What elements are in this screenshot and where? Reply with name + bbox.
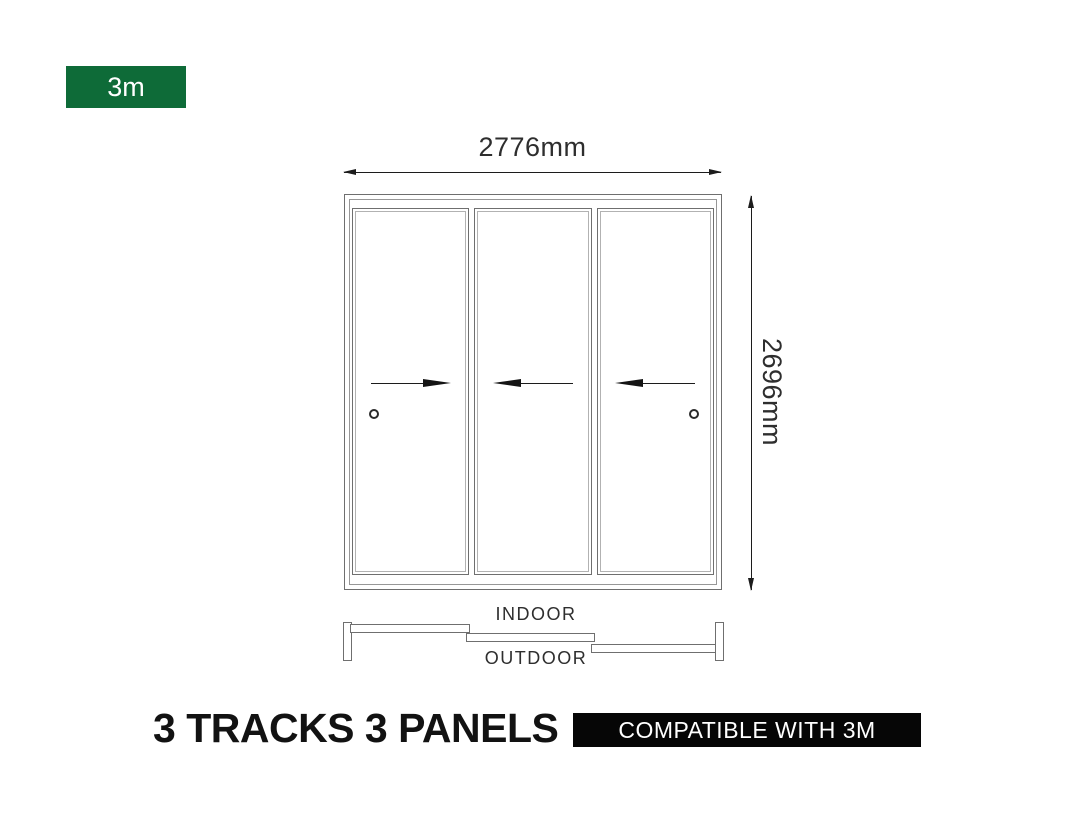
arrow-head [615,379,643,387]
indoor-label: INDOOR [466,604,606,625]
height-dimension-label: 2696mm [756,332,788,452]
arrow-head [423,379,451,387]
sliding-door-diagram: 3m 2776mm [0,0,1080,831]
arrow-shaft [371,383,425,384]
height-dimension: 2696mm [700,194,840,592]
product-title: 3 TRACKS 3 PANELS [153,705,558,751]
compatibility-badge-label: COMPATIBLE WITH 3M [618,717,875,744]
slide-direction-arrow-icon [371,379,451,388]
width-dimension-label: 2776mm [343,132,722,163]
door-handle-icon [369,409,379,419]
width-dimension: 2776mm [343,132,722,178]
arrowhead-up-icon [748,195,754,208]
panel-inner-line [477,211,588,572]
plan-track-panel-3 [591,644,716,653]
arrowhead-right-icon [709,169,722,175]
height-dimension-line [751,196,752,590]
compatibility-badge: COMPATIBLE WITH 3M [573,713,921,747]
door-panel-1 [352,208,469,575]
size-badge: 3m [66,66,186,108]
arrowhead-left-icon [343,169,356,175]
elevation-view-frame [344,194,722,590]
arrow-shaft [519,383,573,384]
arrow-shaft [641,383,695,384]
door-panel-2 [474,208,591,575]
width-dimension-line [344,172,721,173]
panel-inner-line [600,211,711,572]
plan-right-jamb [715,622,724,661]
plan-track-panel-2 [466,633,595,642]
slide-direction-arrow-icon [615,379,695,388]
outdoor-label: OUTDOOR [466,648,606,669]
arrowhead-down-icon [748,578,754,591]
door-panel-3 [597,208,714,575]
size-badge-label: 3m [107,72,145,103]
panels-row [352,208,714,575]
slide-direction-arrow-icon [493,379,573,388]
panel-inner-line [355,211,466,572]
arrow-head [493,379,521,387]
plan-track-panel-1 [350,624,470,633]
door-handle-icon [689,409,699,419]
